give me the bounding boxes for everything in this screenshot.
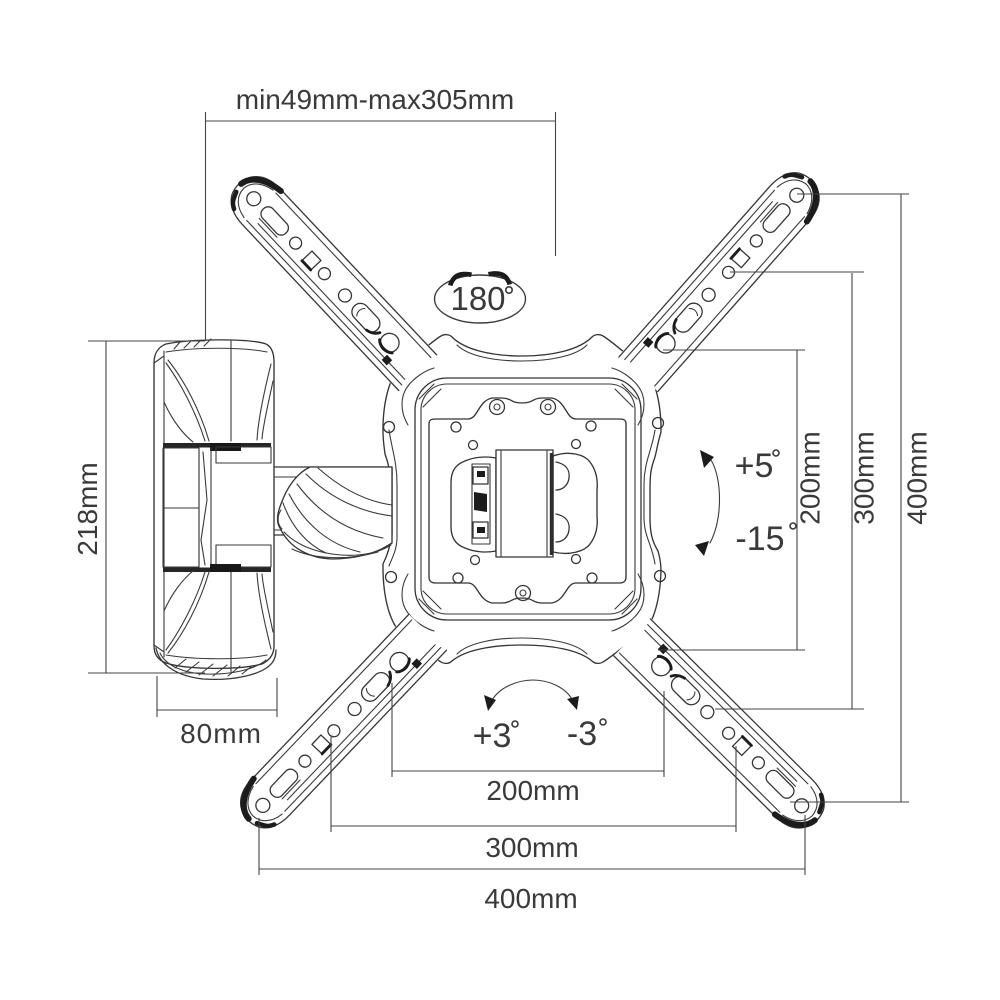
svg-text:400mm: 400mm — [901, 431, 932, 524]
svg-text:-15: -15 — [735, 520, 784, 558]
svg-text:-3: -3 — [567, 715, 597, 753]
svg-text:min49mm-max305mm: min49mm-max305mm — [236, 84, 515, 115]
svg-text:200mm: 200mm — [486, 775, 579, 806]
svg-text:180: 180 — [450, 280, 505, 317]
svg-text:400mm: 400mm — [484, 883, 577, 914]
svg-text:+5: +5 — [735, 447, 774, 485]
svg-text:300mm: 300mm — [848, 431, 879, 524]
svg-text:300mm: 300mm — [485, 832, 578, 863]
svg-text:218mm: 218mm — [72, 462, 103, 555]
svg-text:80mm: 80mm — [180, 718, 262, 749]
svg-text:200mm: 200mm — [794, 431, 825, 524]
svg-text:+3: +3 — [473, 717, 512, 755]
